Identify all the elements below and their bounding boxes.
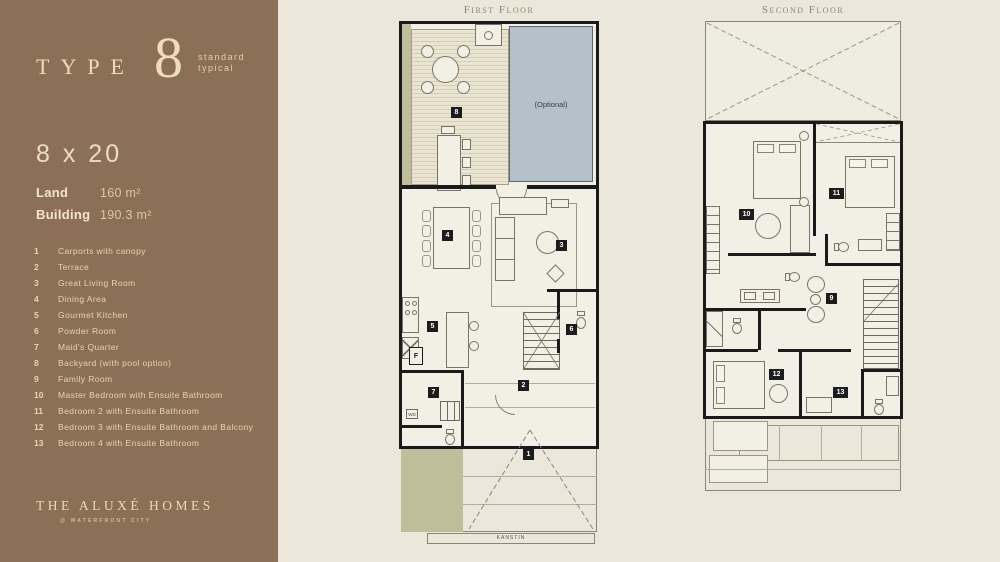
bed-pillow xyxy=(871,159,888,168)
badge-powder: 6 xyxy=(566,324,577,335)
lot-dimensions: 8 x 20 xyxy=(36,140,122,169)
vanity-sink xyxy=(744,292,756,300)
building-value: 190.3 m² xyxy=(100,208,152,222)
sf-wall xyxy=(861,369,864,416)
ff-wall xyxy=(402,185,496,189)
bed-pillow xyxy=(849,159,866,168)
terrace-joint-line xyxy=(465,407,595,408)
legend-number: 13 xyxy=(34,438,50,448)
sf-wall xyxy=(825,263,900,266)
balcony-ledge-line xyxy=(705,469,901,470)
side-round-table xyxy=(810,294,821,305)
building-label: Building xyxy=(36,207,90,222)
sf-wall xyxy=(706,349,758,352)
legend-label: Bedroom 2 with Ensuite Bathroom xyxy=(58,406,199,416)
ceiling-light-icon xyxy=(799,197,809,207)
sidebar-panel: TYPE 8 standard typical 8 x 20 Land 160 … xyxy=(0,0,278,562)
vanity-sink xyxy=(763,292,775,300)
legend-number: 5 xyxy=(34,310,50,320)
fridge-box: F xyxy=(409,347,423,365)
legend-item: 7Maid's Quarter xyxy=(30,342,275,358)
master-dresser xyxy=(790,205,810,253)
legend-number: 4 xyxy=(34,294,50,304)
dining-chair xyxy=(422,225,431,237)
dining-chair xyxy=(422,210,431,222)
land-value: 160 m² xyxy=(100,186,141,200)
type-subtitle-line2: typical xyxy=(198,63,245,74)
kitchen-island xyxy=(446,312,469,368)
second-floor-plan: 10 11 9 12 13 xyxy=(703,21,903,505)
sf-staircase xyxy=(863,279,899,369)
badge-master: 10 xyxy=(739,209,754,220)
deck-round-table xyxy=(432,56,459,83)
legend-number: 9 xyxy=(34,374,50,384)
badge-maid: 7 xyxy=(428,387,439,398)
curb-strip: KANSTIN xyxy=(427,533,595,544)
badge-terrace: 2 xyxy=(518,380,529,391)
sf-wall xyxy=(728,253,816,256)
ff-wall xyxy=(402,370,464,373)
planter-divider xyxy=(861,425,862,461)
legend-label: Family Room xyxy=(58,374,112,384)
legend-label: Bedroom 4 with Ensuite Bathroom xyxy=(58,438,199,448)
bed-pillow xyxy=(757,144,774,153)
stove-burner xyxy=(405,301,410,306)
master-wardrobe xyxy=(706,206,720,274)
planter-divider xyxy=(779,425,780,461)
ff-wall xyxy=(547,289,596,292)
bed-pillow xyxy=(716,365,725,382)
legend-number: 1 xyxy=(34,246,50,256)
legend-label: Carports with canopy xyxy=(58,246,146,256)
legend-item: 1Carports with canopy xyxy=(30,246,275,262)
type-subtitle: standard typical xyxy=(198,52,245,74)
legend-label: Gourmet Kitchen xyxy=(58,310,128,320)
legend-label: Maid's Quarter xyxy=(58,342,119,352)
lounge-chair xyxy=(807,276,825,293)
ff-planter-strip xyxy=(402,24,411,185)
planter-divider xyxy=(821,425,822,461)
toilet-tank xyxy=(577,311,585,316)
sf-wall xyxy=(813,121,816,236)
pool-label: (Optional) xyxy=(535,100,568,109)
front-garden xyxy=(401,449,463,532)
type-number: 8 xyxy=(154,24,183,91)
lounge-chair xyxy=(807,306,825,323)
toilet-bowl xyxy=(576,317,586,329)
tv-console xyxy=(551,199,569,208)
bath-vanity xyxy=(858,239,882,251)
small-void-strip xyxy=(813,124,900,143)
island-stool xyxy=(469,341,479,351)
legend-item: 4Dining Area xyxy=(30,294,275,310)
deck-chair xyxy=(457,81,470,94)
dining-chair xyxy=(422,240,431,252)
type-title-block: TYPE 8 standard typical xyxy=(36,36,266,106)
sf-wall xyxy=(799,352,802,416)
deck-table-chair xyxy=(462,139,471,150)
main-staircase xyxy=(523,312,560,370)
bath-vanity xyxy=(886,376,899,396)
ff-wall xyxy=(557,289,560,319)
toilet-bowl xyxy=(445,434,455,445)
island-stool xyxy=(469,321,479,331)
deck-chair xyxy=(421,81,434,94)
carport-joint-line xyxy=(463,476,597,477)
ff-wall xyxy=(557,339,560,353)
sofa-chaise xyxy=(499,197,547,215)
round-rug xyxy=(755,213,781,239)
legend-item: 8Backyard (with pool option) xyxy=(30,358,275,374)
legend-item: 5Gourmet Kitchen xyxy=(30,310,275,326)
shower-stall xyxy=(706,311,723,347)
type-word: TYPE xyxy=(36,54,135,80)
land-label: Land xyxy=(36,185,68,200)
brand-logo: THE ALUXÉ HOMES xyxy=(36,498,214,514)
bedroom4-desk xyxy=(806,397,832,413)
legend-number: 11 xyxy=(34,406,50,416)
deck-long-table xyxy=(437,135,461,191)
badge-dining: 4 xyxy=(442,230,453,241)
legend-item: 3Great Living Room xyxy=(30,278,275,294)
stove-burner xyxy=(405,310,410,315)
sf-wall xyxy=(861,369,900,372)
sf-wall xyxy=(825,234,828,266)
sofa xyxy=(495,217,515,281)
legend-item: 12Bedroom 3 with Ensuite Bathroom and Ba… xyxy=(30,422,275,438)
toilet-bowl xyxy=(789,272,800,282)
roof-void xyxy=(705,21,901,121)
bedroom2-wardrobe xyxy=(886,213,900,251)
sf-wall xyxy=(778,349,851,352)
legend-number: 3 xyxy=(34,278,50,288)
badge-bedroom4: 13 xyxy=(833,387,848,398)
legend-number: 8 xyxy=(34,358,50,368)
badge-bedroom2: 11 xyxy=(829,188,844,199)
legend-label: Bedroom 3 with Ensuite Bathroom and Balc… xyxy=(58,422,253,432)
legend-number: 10 xyxy=(34,390,50,400)
stove-burner xyxy=(412,310,417,315)
washer-dryer: WD xyxy=(406,409,418,419)
first-floor-plan: (Optional) 8 4 3 5 F 6 7 WD xyxy=(399,21,599,545)
legend-number: 6 xyxy=(34,326,50,336)
legend-label: Great Living Room xyxy=(58,278,136,288)
ff-wall xyxy=(461,370,464,449)
badge-bedroom3: 12 xyxy=(769,369,784,380)
dining-chair xyxy=(472,240,481,252)
stove-burner xyxy=(412,301,417,306)
ff-wall xyxy=(402,425,442,428)
legend-item: 6Powder Room xyxy=(30,326,275,342)
legend-number: 2 xyxy=(34,262,50,272)
badge-kitchen: 5 xyxy=(427,321,438,332)
deck-chair xyxy=(421,45,434,58)
badge-backyard: 8 xyxy=(451,107,462,118)
legend-item: 10Master Bedroom with Ensuite Bathroom xyxy=(30,390,275,406)
ac-unit xyxy=(713,421,768,451)
badge-carport: 1 xyxy=(523,449,534,460)
legend-item: 13Bedroom 4 with Ensuite Bathroom xyxy=(30,438,275,454)
bed-pillow xyxy=(716,387,725,404)
legend-label: Backyard (with pool option) xyxy=(58,358,171,368)
deck-table-chair xyxy=(462,157,471,168)
toilet-bowl xyxy=(732,323,742,334)
legend-number: 7 xyxy=(34,342,50,352)
carport-joint-line xyxy=(463,504,597,505)
legend-item: 9Family Room xyxy=(30,374,275,390)
dining-chair xyxy=(472,225,481,237)
deck-chair xyxy=(457,45,470,58)
pool-optional: (Optional) xyxy=(509,26,593,182)
bed-pillow xyxy=(779,144,796,153)
legend-label: Master Bedroom with Ensuite Bathroom xyxy=(58,390,223,400)
dining-chair xyxy=(422,255,431,267)
toilet-bowl xyxy=(838,242,849,252)
bedroom3-table xyxy=(769,384,788,403)
deck-table-chair xyxy=(441,126,455,134)
ceiling-light-icon xyxy=(799,131,809,141)
type-subtitle-line1: standard xyxy=(198,52,245,63)
toilet-bowl xyxy=(874,404,884,415)
brand-sublogo: @ WATERFRONT CITY xyxy=(60,518,151,524)
badge-family: 9 xyxy=(826,293,837,304)
outdoor-shower-icon xyxy=(484,31,493,40)
badge-living: 3 xyxy=(556,240,567,251)
second-floor-title: Second Floor xyxy=(703,4,903,16)
legend-label: Terrace xyxy=(58,262,89,272)
first-floor-title: First Floor xyxy=(399,4,599,16)
legend-label: Powder Room xyxy=(58,326,116,336)
legend-number: 12 xyxy=(34,422,50,432)
terrace-joint-line xyxy=(465,383,595,384)
legend-item: 2Terrace xyxy=(30,262,275,278)
dining-chair xyxy=(472,255,481,267)
legend-item: 11Bedroom 2 with Ensuite Bathroom xyxy=(30,406,275,422)
dining-chair xyxy=(472,210,481,222)
legend-label: Dining Area xyxy=(58,294,106,304)
ff-wall xyxy=(527,185,596,189)
service-stair xyxy=(440,401,460,421)
sf-wall xyxy=(758,308,761,350)
